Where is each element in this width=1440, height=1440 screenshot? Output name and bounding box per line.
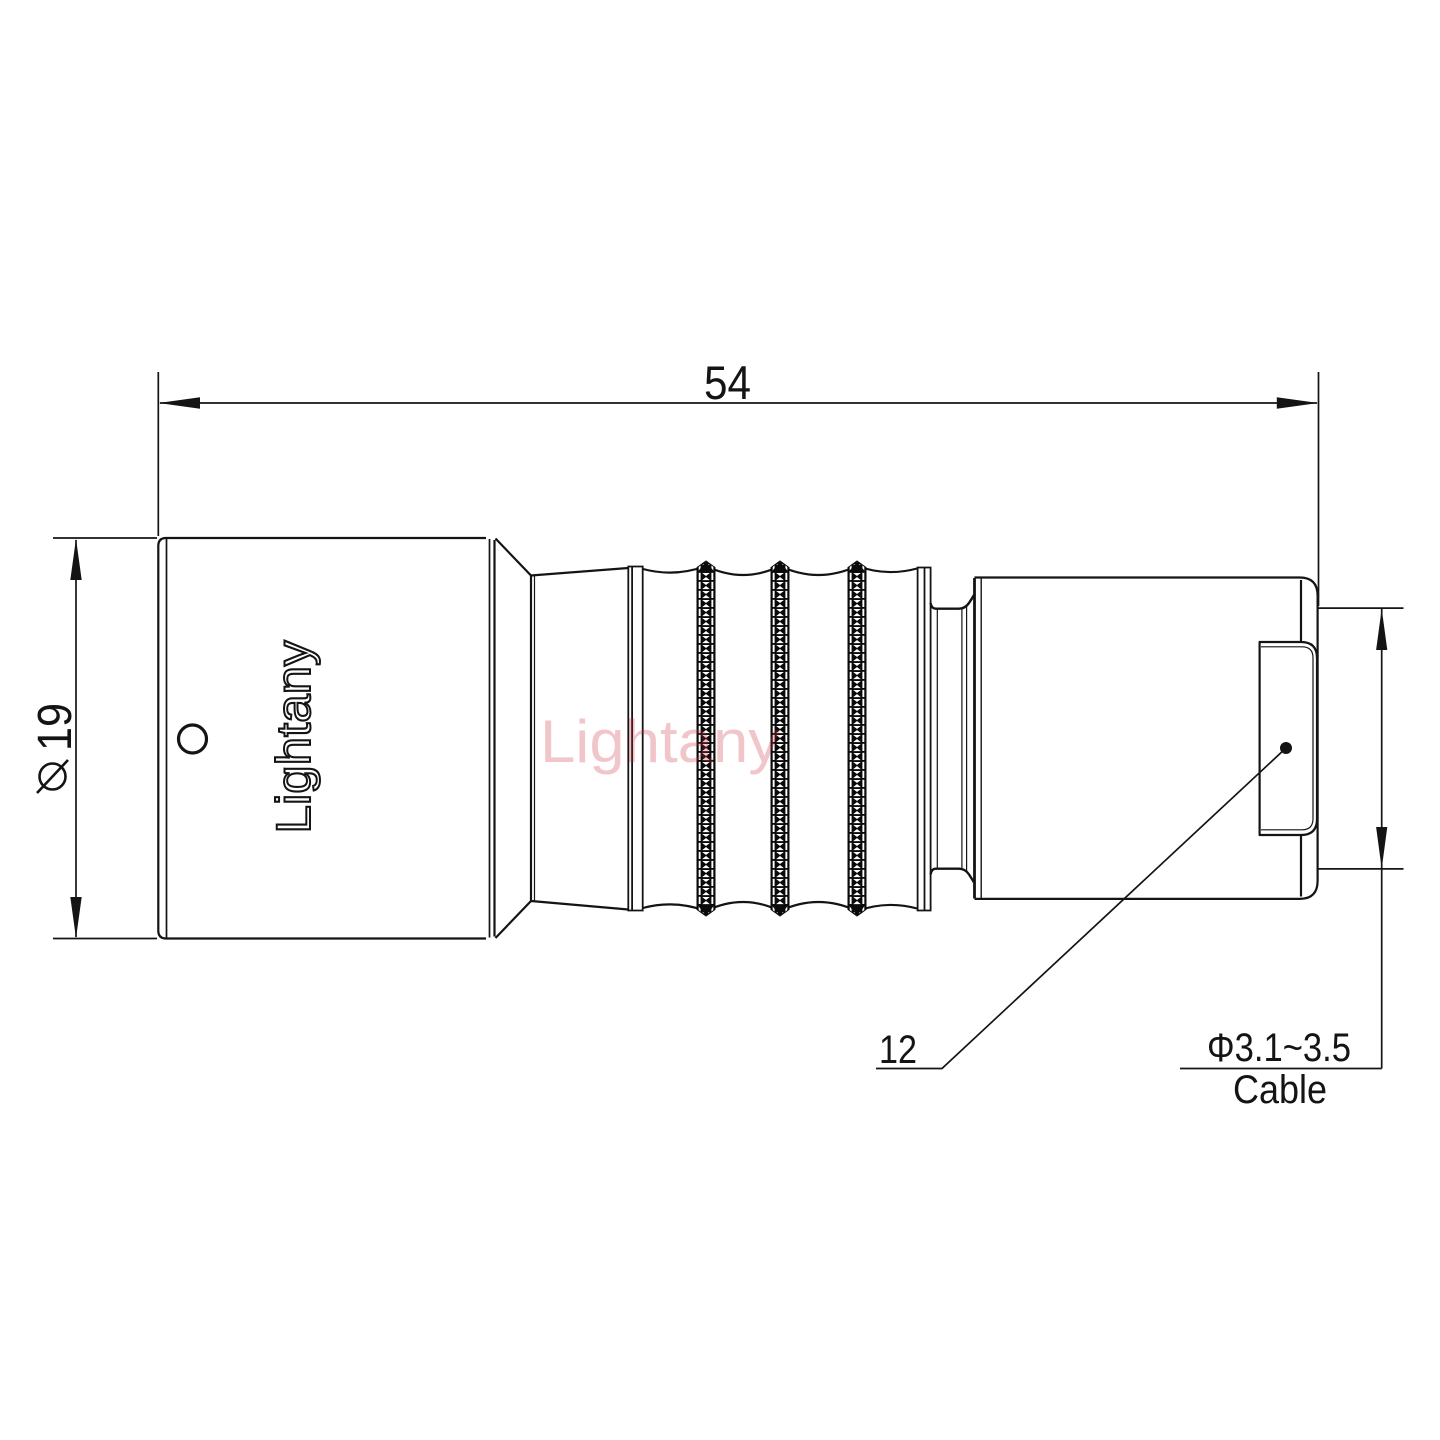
svg-text:54: 54 xyxy=(704,356,751,409)
svg-text:Lightany: Lightany xyxy=(268,641,321,834)
svg-text:12: 12 xyxy=(879,1028,917,1072)
svg-text:Φ3.1~3.5: Φ3.1~3.5 xyxy=(1207,1026,1351,1070)
svg-text:19: 19 xyxy=(29,703,82,751)
svg-text:Lightany: Lightany xyxy=(540,708,780,775)
svg-text:Cable: Cable xyxy=(1233,1068,1327,1112)
